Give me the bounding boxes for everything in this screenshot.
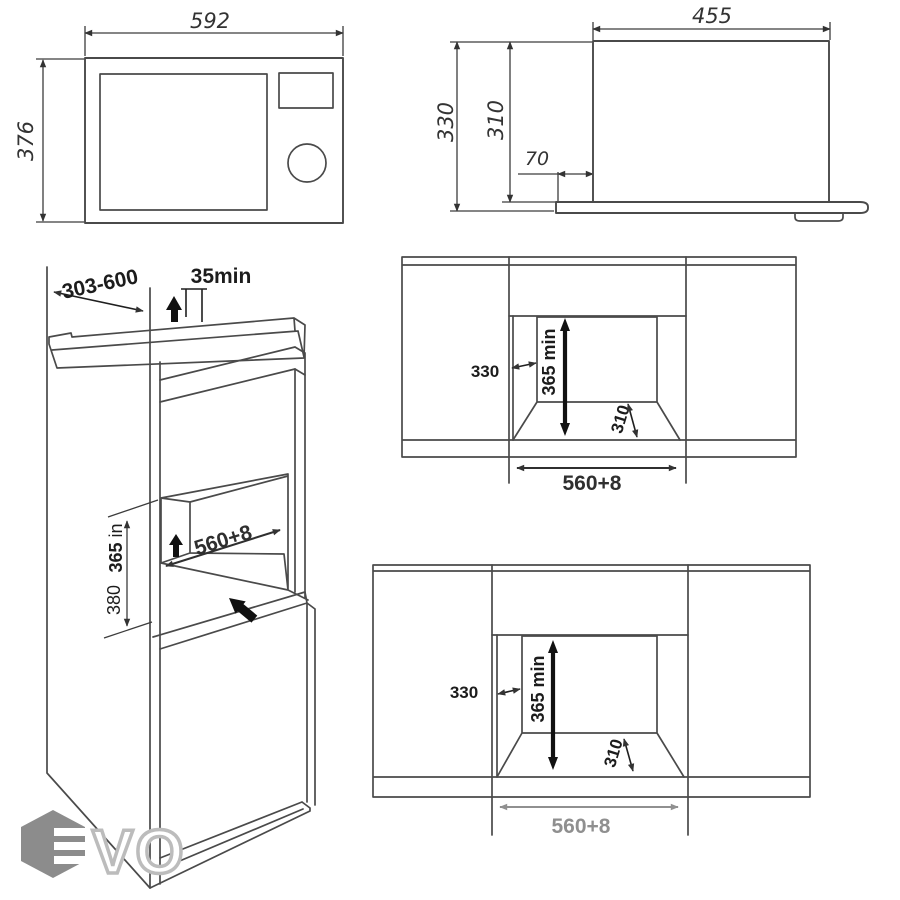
logo-e-bars-icon — [54, 828, 88, 864]
evo-watermark: VO — [21, 810, 186, 887]
cutout2-height-value: 365 — [528, 692, 548, 722]
cutout2-niche-walls — [492, 635, 688, 777]
niche-cutout-bottom: 330 365 min 310 560+8 — [373, 565, 810, 838]
front-view: 592 376 — [14, 9, 343, 223]
top-clearance-label: 35min — [191, 265, 252, 288]
top-clearance-bracket — [181, 289, 207, 322]
technical-drawing: 592 376 455 330 310 70 303-600 35min 5 — [0, 0, 900, 900]
cutout-height-unit: min — [539, 328, 559, 365]
side-view: 455 330 310 70 — [434, 4, 868, 221]
microwave-display — [279, 73, 333, 108]
microwave-side-body — [593, 41, 829, 202]
cutout2-side-arrow — [624, 739, 633, 771]
cutout2-width-label: 560+8 — [552, 815, 611, 838]
cutout-depth-label: 330 — [471, 362, 499, 381]
side-offset-label: 70 — [525, 148, 549, 170]
mounting-plate — [556, 202, 868, 213]
cutout-height-label: 365 min — [539, 328, 559, 395]
side-height-body-label: 310 — [484, 100, 508, 140]
cutout2-height-arrowhead-bottom — [548, 757, 558, 770]
cutout2-height-label: 365 min — [528, 655, 548, 722]
logo-vo-letters: VO — [92, 818, 186, 887]
depth-range-label: 303-600 — [60, 265, 140, 304]
microwave-door — [100, 74, 267, 210]
cutout2-depth-arrow — [498, 689, 520, 694]
front-width-label: 592 — [190, 9, 230, 33]
microwave-knob — [288, 144, 326, 182]
cutout2-height-arrowhead-top — [548, 640, 558, 653]
cutout-niche-walls — [509, 316, 686, 440]
cutout-cabinet-outline — [402, 257, 796, 457]
side-height-total-label: 330 — [434, 102, 458, 142]
top-rail-band — [160, 347, 305, 402]
cutout2-side-label: 310 — [600, 737, 626, 770]
cabinet-right-edges — [295, 369, 305, 598]
cutout-width-label: 560+8 — [563, 472, 622, 495]
niche-height-alt-label: 380 — [104, 585, 124, 615]
cabinet-isometric-view: 303-600 35min 560+8 365 in 380 — [47, 265, 315, 888]
cutout2-cabinet-outline — [373, 565, 810, 797]
cutout2-depth-label: 330 — [450, 683, 478, 702]
microwave-body — [85, 58, 343, 223]
cutout-height-arrowhead-bottom — [560, 423, 570, 436]
niche-cutout-top: 330 365 min 310 560+8 — [402, 257, 796, 495]
front-extension-lines — [36, 26, 343, 222]
niche-vent-arrow-icon — [169, 534, 183, 557]
counter-top-slab — [49, 318, 305, 368]
installation-drawing-page: 592 376 455 330 310 70 303-600 35min 5 — [0, 0, 900, 900]
niche-height-min-label: 365 in — [106, 523, 126, 572]
niche-height-unit: in — [106, 523, 126, 542]
front-height-label: 376 — [14, 121, 38, 161]
plate-foot — [795, 213, 843, 221]
cutout-division-lines — [509, 257, 686, 483]
cutout-depth-arrow — [512, 363, 536, 368]
insert-direction-arrow-icon — [229, 598, 257, 623]
niche-height-value: 365 — [106, 542, 126, 572]
vent-direction-arrow-icon — [166, 296, 182, 322]
cutout-height-arrowhead-top — [560, 318, 570, 331]
side-width-label: 455 — [692, 4, 732, 28]
cutout2-height-unit: min — [528, 655, 548, 692]
cabinet-vertical-edges — [47, 267, 160, 888]
cutout-height-value: 365 — [539, 365, 559, 395]
